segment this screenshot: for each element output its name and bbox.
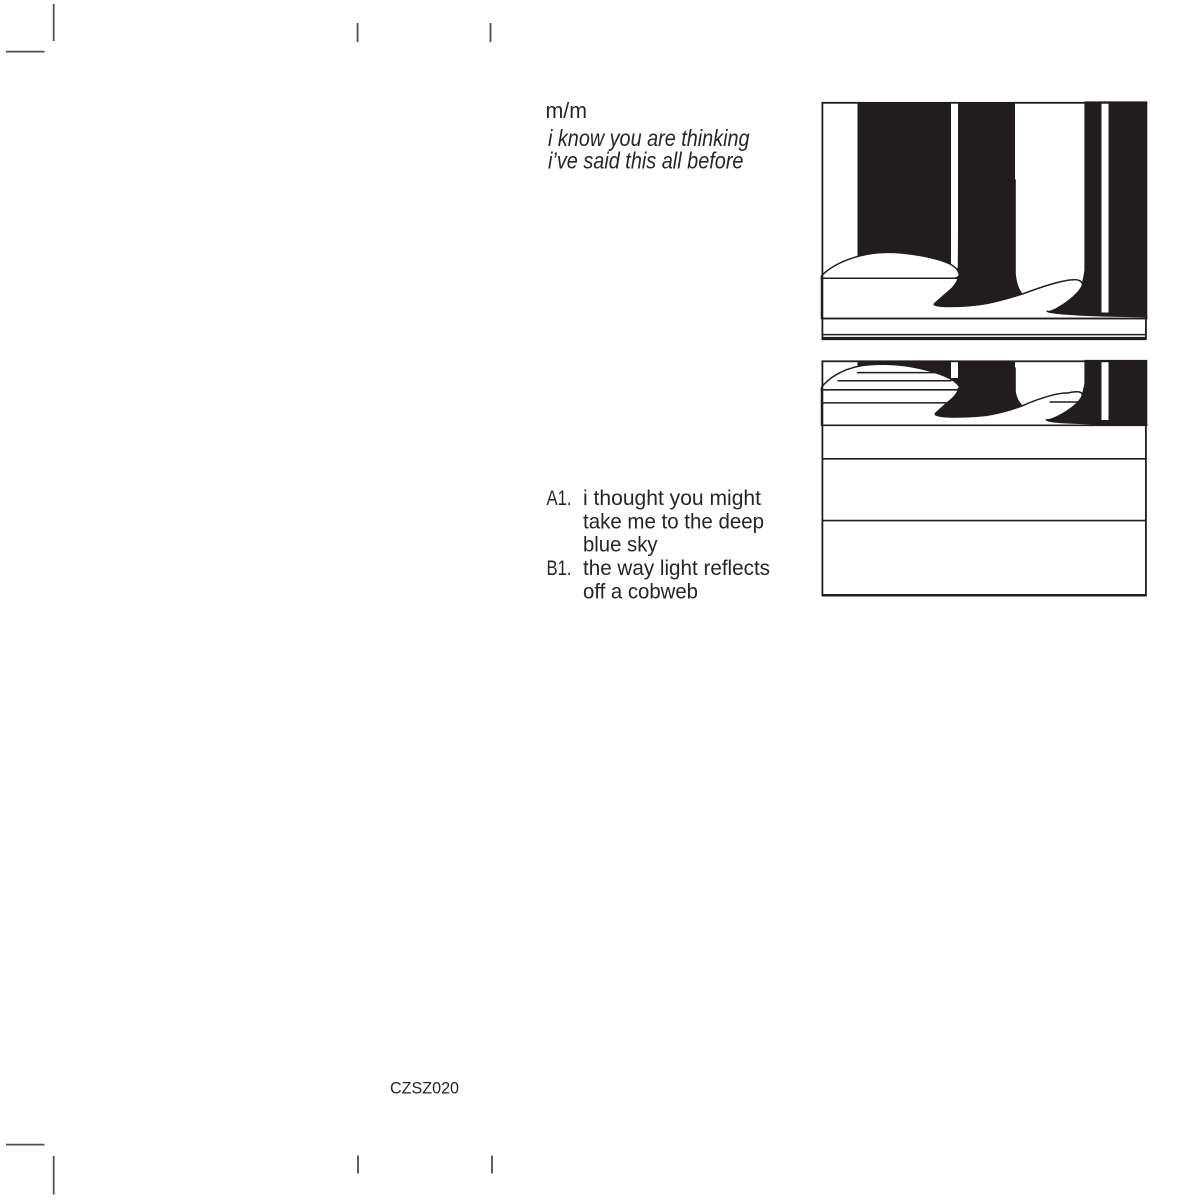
- svg-text:B1.: B1.: [547, 556, 572, 580]
- svg-text:A1.: A1.: [547, 486, 572, 510]
- svg-text:blue sky: blue sky: [583, 533, 658, 557]
- svg-text:take me to the deep: take me to the deep: [583, 509, 764, 533]
- svg-text:m/m: m/m: [546, 98, 588, 123]
- svg-text:CZSZ020: CZSZ020: [390, 1079, 459, 1097]
- svg-text:the way light reflects: the way light reflects: [583, 556, 770, 580]
- svg-text:i’ve said this all before: i’ve said this all before: [548, 148, 744, 174]
- svg-text:i thought you might: i thought you might: [583, 486, 761, 510]
- svg-text:off a cobweb: off a cobweb: [583, 580, 698, 604]
